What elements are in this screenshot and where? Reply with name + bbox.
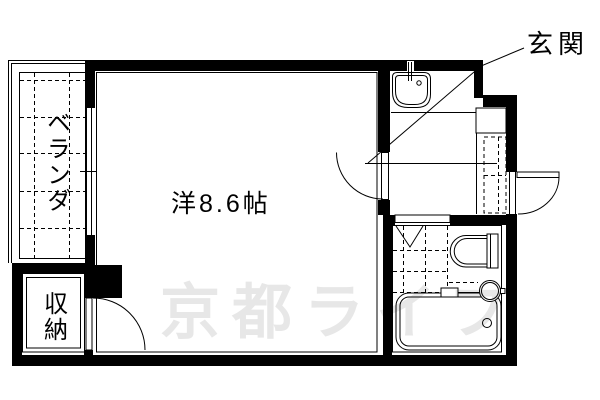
entrance-label: 玄関 — [527, 31, 589, 58]
storage-label: 収納 — [40, 291, 64, 343]
watermark: 京都ライフ — [160, 264, 520, 351]
toilet-tank — [487, 234, 498, 268]
bathroom-threshold — [395, 215, 450, 223]
balcony-label: ベランダ — [43, 110, 67, 214]
floorplan: 玄関 洋8.6帖 ベランダ 収納 京都ライフ — [0, 0, 600, 400]
front-door-leaf — [517, 172, 559, 178]
room-size-label: 洋8.6帖 — [171, 192, 271, 218]
toilet — [450, 234, 498, 268]
